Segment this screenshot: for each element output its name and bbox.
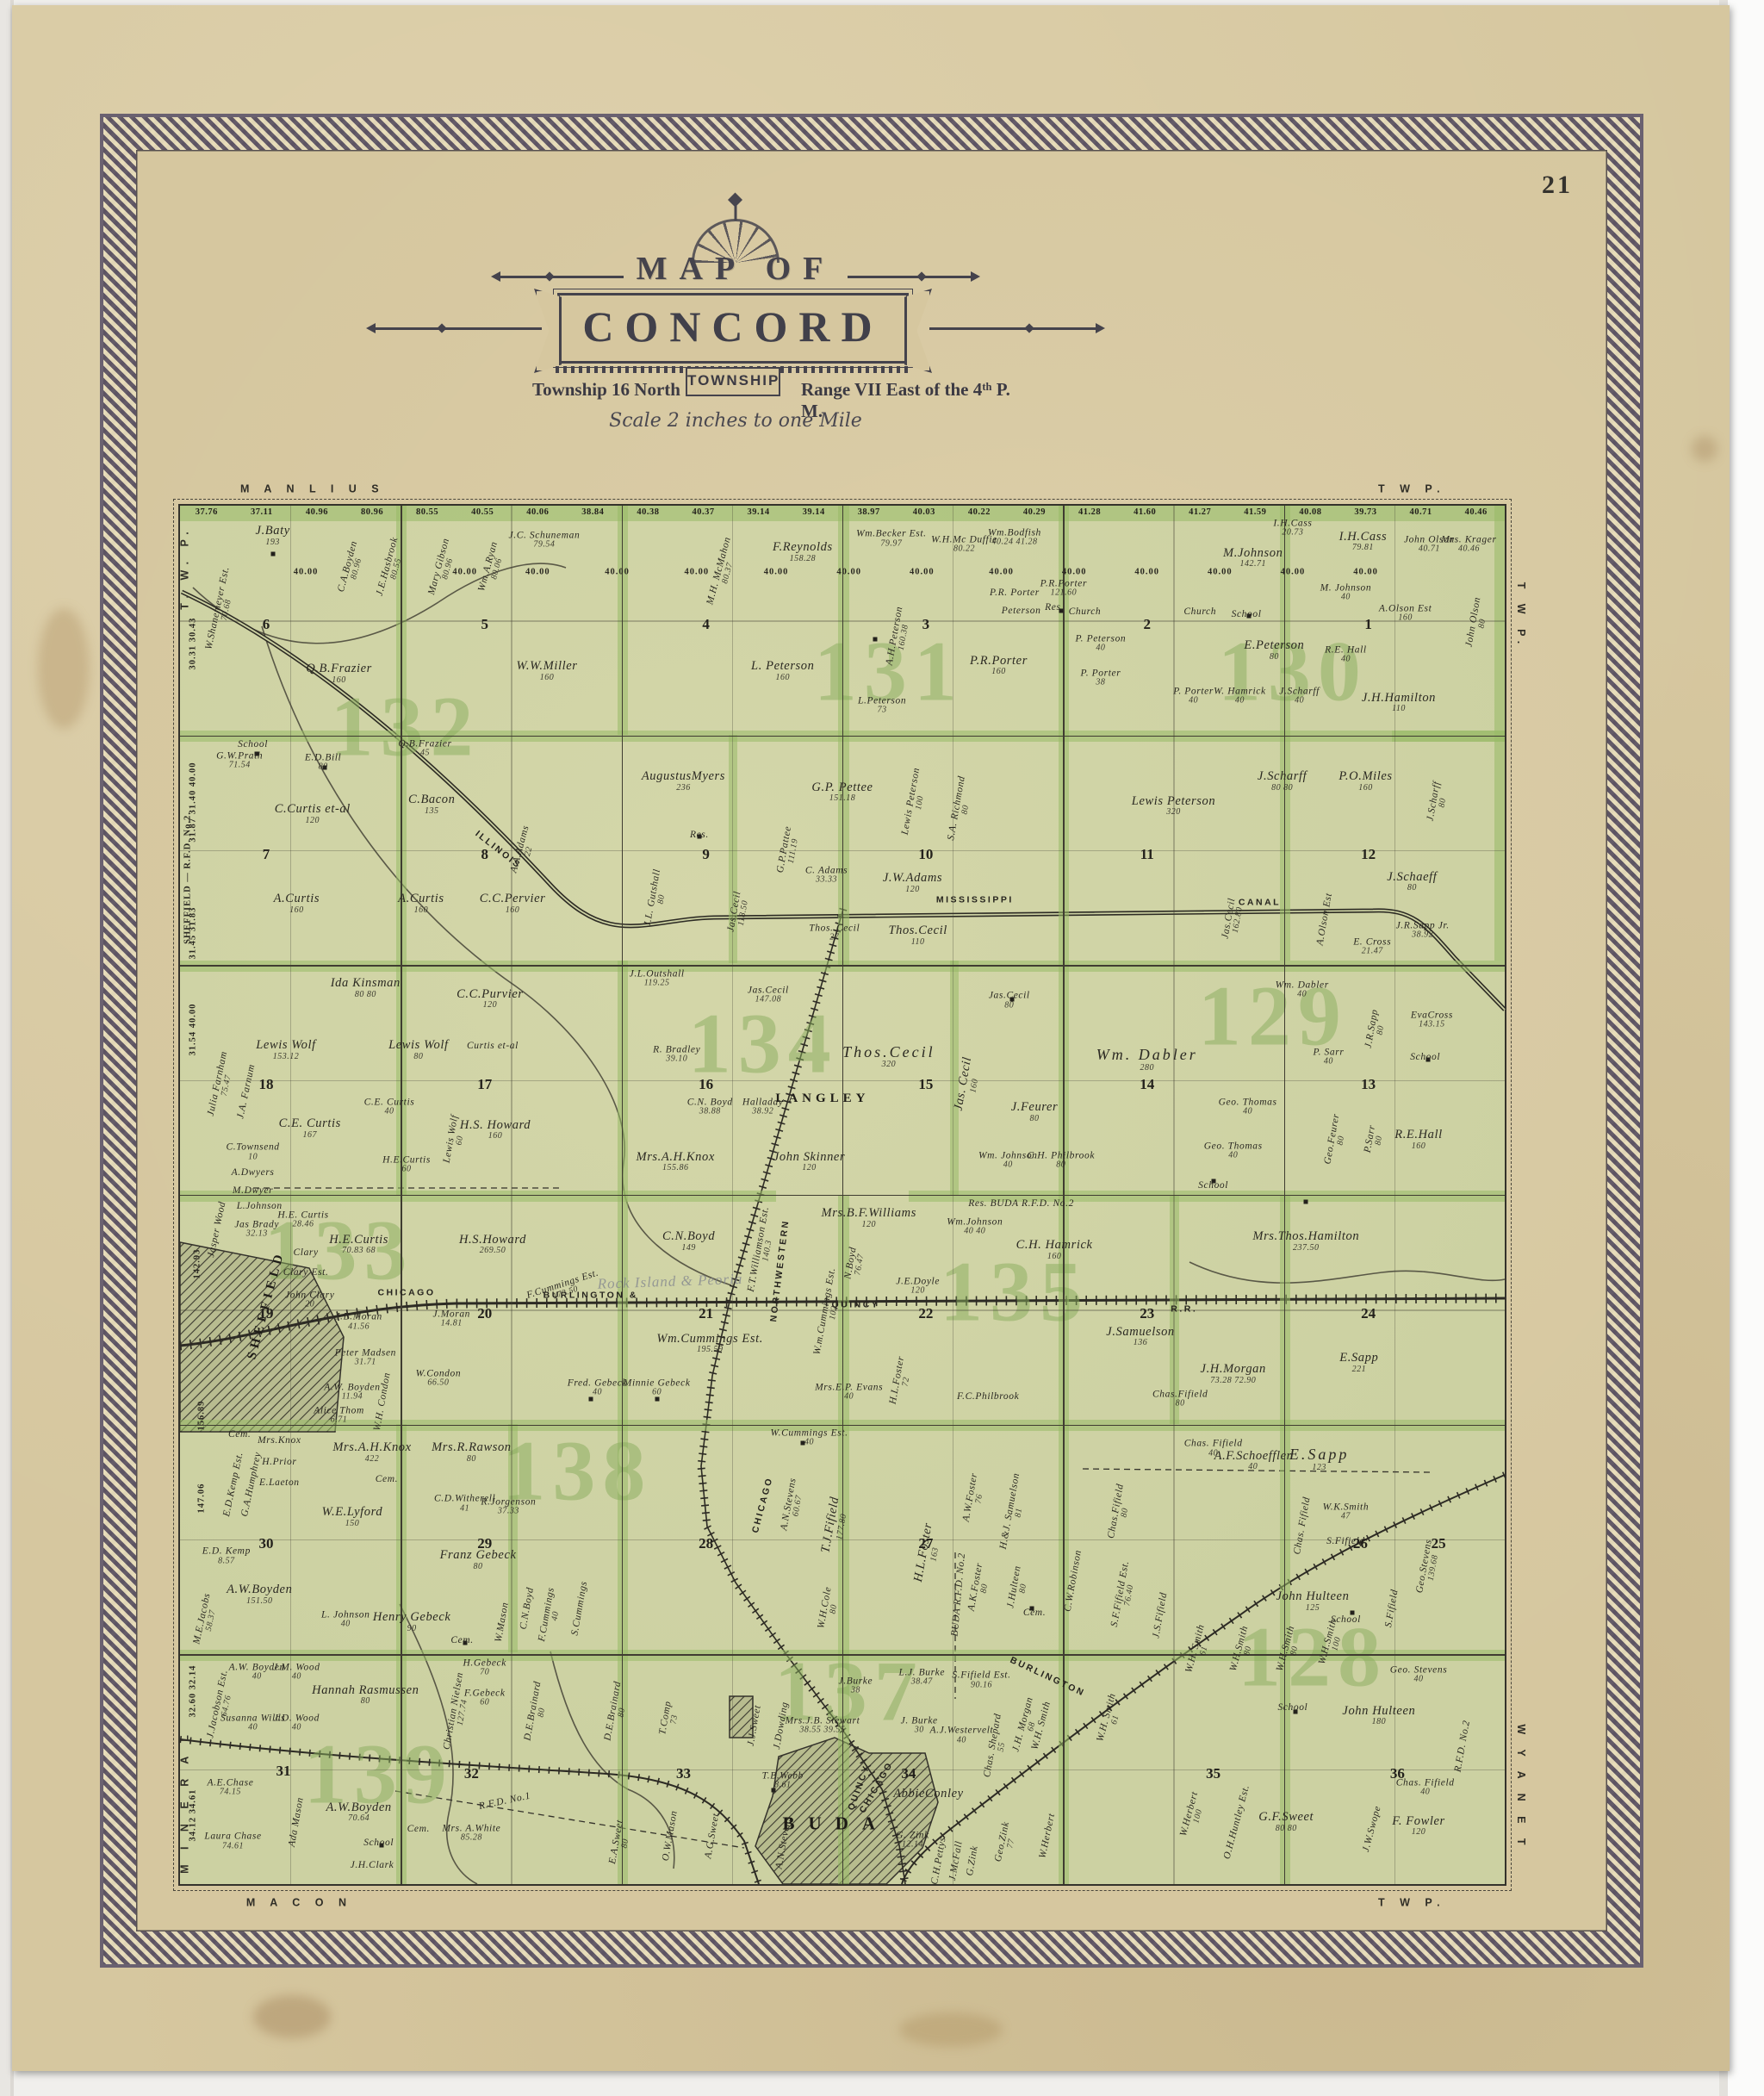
label-text: J.L.Outshall — [630, 968, 685, 979]
acreage-value: 80 80 — [331, 990, 401, 999]
parcel-owner-label: E.Peterson80 — [1244, 639, 1304, 662]
label-text: 40.00 — [605, 567, 630, 576]
parcel-owner-label: C.A.Boyden80.96 — [336, 540, 369, 596]
label-text: F.Reynolds — [773, 540, 833, 554]
label-text: O.W.Mason — [661, 1810, 680, 1862]
survey-number: 32.60 32.14 — [189, 1665, 198, 1718]
acreage-value: 20.73 — [1273, 528, 1312, 538]
survey-number: 40.06 — [526, 507, 549, 517]
label-text: Jas Brady — [234, 1219, 279, 1229]
parcel-owner-label: R.E.Hall160 — [1394, 1129, 1443, 1151]
parcel-owner-label: D.E.Brainard80 — [523, 1681, 553, 1744]
parcel-owner-label: P. Porter38 — [1081, 668, 1121, 687]
parcel-owner-label: W.Condon66.50 — [416, 1368, 462, 1388]
acreage-value: 120 — [457, 1001, 524, 1011]
acreage-value: 40 — [1390, 1676, 1448, 1685]
parcel-owner-label: P. Peterson40 — [1076, 633, 1127, 653]
parcel-owner-label: E.Laeton — [259, 1477, 300, 1488]
label-text: R.Jorgenson — [481, 1496, 536, 1507]
parcel-owner-label: E. Cross21.47 — [1353, 936, 1391, 956]
label-text: T. W. P. — [178, 526, 190, 609]
label-text: 40.00 — [764, 567, 789, 576]
acreage-value: 40 — [1219, 1107, 1277, 1116]
acreage-value: 60 — [624, 1389, 691, 1398]
acreage-value: 37.33 — [481, 1507, 536, 1516]
label-text: H.Gebeck — [463, 1658, 506, 1668]
parcel-owner-label: A.W.Foster76 — [960, 1472, 989, 1524]
railroad-label: MISSISSIPPI — [936, 895, 1014, 905]
parcel-owner-label: W.W.Miller160 — [517, 660, 578, 682]
parcel-owner-label: Fred. Gebeck40 — [568, 1378, 627, 1397]
parcel-owner-label: P.O.Miles160 — [1339, 770, 1392, 793]
label-text: C.H.Pettys — [929, 1836, 948, 1885]
railroad-label: BURLINGTON — [1009, 1656, 1087, 1699]
label-text: J.D. Wood — [274, 1713, 320, 1723]
section-number: 5 — [481, 616, 488, 633]
section-number: 35 — [1206, 1765, 1221, 1782]
parcel-owner-label: E.Sapp221 — [1339, 1352, 1378, 1374]
survey-number: 40.00 — [294, 567, 319, 576]
label-text: Thos.Cecil — [888, 924, 947, 937]
acreage-value: 60 — [464, 1699, 506, 1708]
acreage-value: 40 — [930, 1736, 994, 1745]
label-text: J.A. Farnum — [235, 1063, 257, 1120]
house-marker — [873, 638, 878, 642]
parcel-owner-label: A.H.Peterson160.38 — [885, 606, 915, 668]
parcel-owner-label: A.W.Boyden151.50 — [227, 1583, 292, 1606]
parcel-owner-label: Wm.Cummings Est.195.59 — [656, 1333, 763, 1355]
acreage-value: 40 — [1214, 697, 1266, 706]
parcel-owner-label: Laura Chase74.61 — [204, 1832, 261, 1851]
label-text: Minnie Gebeck — [624, 1378, 691, 1388]
parcel-owner-label: C. Adams33.33 — [805, 865, 848, 885]
parcel-owner-label: T.Comp73 — [657, 1701, 683, 1738]
parcel-owner-label: Minnie Gebeck60 — [624, 1378, 691, 1397]
label-text: M.Dwyer — [233, 1185, 273, 1196]
survey-number: 41.60 — [1134, 507, 1156, 517]
house-marker — [270, 552, 275, 557]
survey-number: 40.00 — [836, 567, 861, 576]
parcel-owner-label: J.Samuelson136 — [1106, 1326, 1175, 1348]
parcel-owner-label: Jas Brady32.13 — [234, 1219, 279, 1239]
label-text: S.Fifield — [1383, 1589, 1401, 1628]
acreage-value: 167 — [279, 1131, 341, 1141]
acreage-value: 38.92 — [742, 1107, 784, 1116]
acreage-value: 40 — [771, 1438, 848, 1447]
parcel-owner-label: A.E.Chase74.15 — [207, 1777, 253, 1797]
survey-number: 39.14 — [803, 507, 825, 517]
parcel-owner-label: Geo.Feurer80 — [1322, 1113, 1351, 1167]
label-text: W.Herbert — [1038, 1813, 1058, 1860]
parcel-owner-label: R.F.D. No.1 — [478, 1791, 531, 1813]
section-number: 7 — [263, 846, 270, 863]
acreage-value: 20 — [285, 1300, 334, 1309]
parcel-owner-label: A.Olson Est160 — [1379, 603, 1432, 623]
railroad-label: CHICAGO — [751, 1476, 775, 1534]
label-text: J.C. Schuneman — [509, 530, 581, 540]
parcel-owner-label: Mrs.A.H.Knox422 — [332, 1441, 411, 1464]
survey-number: 38.84 — [581, 507, 604, 517]
parcel-owner-label: M.Dwyer — [233, 1185, 273, 1196]
label-text: J.M. Wood — [273, 1662, 320, 1672]
label-text: J.H.Hamilton — [1362, 691, 1436, 705]
parcel-owner-label: J.H.Hamilton110 — [1362, 692, 1436, 714]
survey-number: 40.00 — [525, 567, 550, 576]
label-text: Henry Gebeck — [373, 1610, 451, 1624]
acreage-value: 27 — [809, 934, 860, 943]
section-number: 36 — [1390, 1765, 1405, 1782]
label-text: Cem. — [228, 1429, 251, 1440]
acreage-value: 160 — [751, 673, 814, 682]
survey-number: 40.00 — [605, 567, 630, 576]
parcel-owner-label: Julia Farnham75.47 — [206, 1050, 239, 1119]
label-text: P.R.Porter — [1040, 578, 1087, 588]
section-number: 6 — [263, 616, 270, 633]
parcel-owner-label: W. Hamrick40 — [1214, 686, 1266, 706]
survey-number: 38.97 — [858, 507, 880, 517]
acreage-value: 110 — [888, 938, 947, 948]
survey-number: 80.55 — [416, 507, 438, 517]
label-text: Chas. Fifield — [1292, 1496, 1313, 1556]
label-text: School — [1198, 1180, 1228, 1191]
parcel-owner-label: Church — [1183, 606, 1216, 617]
parcel-owner-label: Jas.Cecil162.80 — [1220, 897, 1246, 941]
parcel-owner-label: J.C. Schuneman79.54 — [509, 530, 581, 550]
acreage-value: 120 — [1392, 1828, 1445, 1838]
acreage-value: 28.46 — [277, 1221, 328, 1230]
parcel-owner-label: Thos.Cecil320 — [842, 1044, 935, 1070]
section-number: 22 — [918, 1305, 933, 1322]
label-text: Mrs.J.B. Stewart — [785, 1715, 860, 1726]
acreage-value: 41.56 — [335, 1322, 382, 1332]
section-number: 18 — [258, 1076, 273, 1093]
label-text: 40.00 — [1353, 567, 1378, 576]
parcel-owner-label: J.W.Swope — [1361, 1805, 1383, 1853]
label-text: C.N.Boyd — [519, 1587, 536, 1631]
parcel-owner-label: John Hulteen180 — [1342, 1705, 1415, 1727]
edge-label: T W P. — [1378, 1898, 1446, 1910]
parcel-owner-label: John Hulteen125 — [1276, 1590, 1350, 1613]
label-text: T W P. — [1378, 1897, 1446, 1909]
label-text: P. Sarr — [1313, 1047, 1344, 1057]
acreage-value: 135 — [408, 807, 456, 817]
parcel-owner-label: L. Peterson160 — [751, 660, 814, 682]
label-text: A.G.Sweet — [704, 1813, 722, 1860]
parcel-owner-label: Geo. Stevens40 — [1390, 1664, 1448, 1684]
parcel-owner-label: Q.B.Frazier160 — [306, 662, 372, 685]
parcel-owner-label: Church — [1069, 606, 1102, 617]
label-text: A.J.Westervelt — [930, 1726, 994, 1736]
acreage-value: 110 — [1362, 705, 1436, 714]
edge-label: T. W. P. — [179, 526, 191, 609]
survey-number: 40.55 — [471, 507, 494, 517]
label-text: J.Schaeff — [1387, 870, 1437, 884]
label-text: AugustusMyers — [642, 769, 725, 783]
label-text: School — [1410, 1052, 1440, 1062]
section-number: 20 — [477, 1305, 492, 1322]
acreage-value: 85.28 — [442, 1834, 500, 1844]
parcel-owner-label: John Olson80 — [1464, 596, 1493, 650]
survey-number: 31.54 40.00 — [189, 1004, 198, 1056]
parcel-owner-label: A.G.Sweet — [704, 1813, 722, 1860]
label-text: L.Johnson — [237, 1201, 283, 1211]
label-text: O.H.Huntley Est. — [1222, 1784, 1252, 1861]
survey-number: 37.76 — [196, 507, 218, 517]
parcel-owner-label: C.H. Hamrick160 — [1016, 1239, 1093, 1261]
acreage-value: 73 — [858, 706, 906, 716]
house-marker — [1304, 1200, 1308, 1204]
label-text: M. Johnson — [1320, 582, 1372, 593]
label-text: H.Prior — [262, 1457, 296, 1467]
parcel-owner-label: A.W.Boyden70.64 — [326, 1801, 391, 1824]
label-text: BUDA — [783, 1813, 890, 1833]
parcel-owner-label: P. Porter40 — [1173, 686, 1214, 706]
label-text: P.O.Miles — [1339, 769, 1392, 783]
label-text: R.E. Hall — [1325, 644, 1367, 655]
parcel-owner-label: P. Sarr40 — [1313, 1047, 1344, 1067]
parcel-owner-label: J.L.Outshall119.25 — [630, 968, 685, 988]
label-text: J.McFall — [947, 1840, 965, 1881]
acreage-value: 80 — [432, 1455, 512, 1465]
parcel-owner-label: J.Burke38 — [839, 1676, 873, 1695]
parcel-owner-label: Thos. Cecil27 — [809, 923, 860, 942]
parcel-owner-label: J.J.Sweet — [746, 1704, 764, 1747]
parcel-owner-label: Mrs.E.P. Evans40 — [815, 1382, 883, 1402]
section-number: 29 — [477, 1535, 492, 1552]
parcel-owner-label: Peterson — [1002, 605, 1041, 615]
acreage-value: 280 — [1096, 1064, 1198, 1073]
section-number: 21 — [699, 1305, 713, 1322]
parcel-owner-label: F.Gebeck60 — [464, 1688, 506, 1707]
label-text: 40.00 — [989, 567, 1014, 576]
acreage-value: 320 — [1132, 808, 1215, 818]
label-text: S.Fifield Est. — [952, 1670, 1010, 1681]
section-number: 31 — [276, 1763, 290, 1780]
survey-number: 40.00 — [1062, 567, 1087, 576]
foxing-stain — [1692, 436, 1717, 462]
label-text: Fred. Gebeck — [568, 1378, 627, 1388]
label-text: Clary — [294, 1247, 319, 1258]
parcel-owner-label: C.Townsend10 — [227, 1142, 280, 1162]
parcel-owner-label: Wm.Becker Est.79.97 — [856, 529, 927, 549]
label-text: R.R. — [1171, 1303, 1197, 1314]
parcel-owner-label: W.Shanemeyer Est.70.68 — [204, 566, 241, 653]
parcel-owner-label: W.Herbert — [1038, 1813, 1058, 1860]
label-text: C.C.Purvier — [457, 987, 524, 1001]
acreage-value: 31.71 — [335, 1359, 396, 1368]
label-text: W.Cummings Est. — [771, 1427, 848, 1438]
acreage-value: 80 — [1244, 652, 1304, 662]
parcel-owner-label: A.Dwyers — [232, 1167, 275, 1178]
label-text: 156.89 — [196, 1401, 206, 1431]
label-text: J.W.Adams — [883, 871, 942, 885]
parcel-owner-label: T.B.Webb8.61 — [762, 1770, 804, 1790]
acreage-value: 40 — [815, 1393, 883, 1403]
parcel-owner-label: J.S.Fifield — [1151, 1591, 1170, 1639]
section-number: 24 — [1361, 1305, 1376, 1322]
parcel-owner-label: Cem. — [376, 1473, 398, 1483]
label-text: I.H.Cass — [1339, 529, 1388, 543]
survey-number: 30.31 30.43 — [189, 618, 198, 670]
label-text: Wm.Cummings Est. — [656, 1332, 763, 1346]
acreage-value: 40 — [1325, 656, 1367, 665]
parcel-owner-label: H.E.Curtis70.83 68 — [329, 1233, 388, 1255]
acreage-value: 119.25 — [630, 980, 685, 989]
label-text: Thos.Cecil — [842, 1043, 935, 1060]
parcel-owner-label: J.Moran14.81 — [433, 1309, 470, 1328]
section-number: 3 — [922, 616, 930, 633]
parcel-owner-label: J.Scharff80 — [1425, 781, 1452, 824]
label-text: J.Burke — [839, 1676, 873, 1686]
acreage-value: 160 — [1339, 783, 1392, 793]
parcel-owner-label: H.E. Curtis28.46 — [277, 1210, 328, 1229]
survey-number: 80.96 — [361, 507, 383, 517]
label-text: F.C.Philbrook — [957, 1390, 1019, 1401]
label-text: Wm. Dabler — [1096, 1046, 1198, 1063]
acreage-value: 40 — [1076, 644, 1127, 654]
label-text: J.Scharff — [1279, 686, 1320, 696]
parcel-owner-label: G.F.Sweet80 80 — [1258, 1811, 1314, 1833]
section-number: 28 — [699, 1535, 713, 1552]
edge-label: M A N L I U S — [240, 483, 385, 495]
plat-map: 13213113013413312913513813713912837.7637… — [178, 504, 1506, 1886]
label-text: A.Curtis — [398, 892, 444, 905]
survey-number: 40.00 — [764, 567, 789, 576]
label-text: 147.06 — [196, 1483, 206, 1514]
parcel-owner-label: J.A. Farnum — [235, 1063, 258, 1120]
parcel-owner-label: R.F.D. No.2 — [1452, 1720, 1472, 1773]
section-number: 2 — [1143, 616, 1151, 633]
section-grid-line — [1284, 506, 1285, 1884]
acreage-value: 21.47 — [1353, 948, 1391, 957]
section-number: 13 — [1361, 1076, 1376, 1093]
label-text: MISSISSIPPI — [936, 894, 1014, 905]
acreage-value: 80 — [440, 1562, 517, 1571]
parcel-owner-label: Lewis Peterson100 — [899, 767, 931, 837]
acreage-value: 80 — [1387, 884, 1437, 893]
edge-label: T W P. — [1515, 582, 1527, 650]
title-map-of: MAP OF — [460, 250, 1011, 288]
label-text: C.H. Hamrick — [1016, 1238, 1093, 1252]
label-text: H.S. Howard — [460, 1118, 531, 1132]
label-text: Alice Thom — [314, 1405, 364, 1415]
label-text: Curtis et-al — [467, 1041, 519, 1051]
parcel-owner-label: Christian Nielsen127.74 — [442, 1671, 475, 1752]
label-text: I.H.Cass — [1273, 518, 1312, 528]
parcel-owner-label: G.W.Prath71.54 — [216, 750, 263, 770]
parcel-owner-label: J.Feurer80 — [1011, 1101, 1059, 1123]
label-text: School — [238, 739, 268, 749]
parcel-owner-label: Mrs.B.F.Williams120 — [822, 1207, 916, 1229]
label-text: P. Porter — [1081, 668, 1121, 678]
label-text: H.E.Curtis — [329, 1232, 388, 1246]
label-text: Mrs.R.Rawson — [432, 1440, 512, 1454]
acreage-value: 160 — [306, 676, 372, 686]
label-text: School — [1232, 609, 1262, 619]
acreage-value: 160 — [517, 673, 578, 682]
survey-number: 147.06 — [196, 1483, 206, 1514]
label-text: J.W.Swope — [1361, 1805, 1383, 1853]
acreage-value: 160 — [480, 906, 546, 916]
label-text: G.W.Prath — [216, 750, 263, 761]
acreage-value: 80 80 — [1258, 1824, 1314, 1833]
section-number: 9 — [702, 846, 710, 863]
label-text: Mrs.A.H.Knox — [332, 1440, 411, 1454]
label-text: T W P. — [1378, 482, 1446, 494]
label-text: J.Moran — [433, 1309, 470, 1319]
parcel-owner-label: School — [1198, 1180, 1228, 1191]
section-number: 30 — [258, 1535, 273, 1552]
parcel-owner-label: A.J.Westervelt40 — [930, 1726, 994, 1745]
parcel-owner-label: G.P. Pettee151.18 — [811, 781, 873, 804]
parcel-owner-label: School — [1277, 1702, 1307, 1713]
acreage-value: 60 — [382, 1166, 431, 1175]
parcel-owner-label: R.Jorgenson37.33 — [481, 1496, 536, 1516]
label-text: J.Scharff — [1258, 769, 1307, 783]
label-text: E.Laeton — [259, 1477, 300, 1488]
parcel-owner-label: F.Reynolds158.28 — [773, 541, 833, 563]
section-number: 23 — [1140, 1305, 1154, 1322]
acreage-value: 142.71 — [1223, 560, 1283, 569]
parcel-owner-label: G. Zink12.14 — [896, 1830, 929, 1850]
parcel-owner-label: C.C.Purvier120 — [457, 988, 524, 1011]
acreage-value: 221 — [1339, 1365, 1378, 1375]
parcel-owner-label: A.Olson Est — [1314, 893, 1334, 947]
label-text: P.R.Porter — [970, 653, 1028, 667]
parcel-owner-label: S.Cummings — [570, 1580, 590, 1636]
label-text: Cem. — [407, 1824, 430, 1834]
parcel-owner-label: C.Curtis et-al120 — [275, 803, 351, 825]
parcel-owner-label: L. Johnson40 — [321, 1609, 370, 1629]
parcel-owner-label: M.H. McMahon80.37 — [705, 536, 742, 608]
survey-number: 40.00 — [685, 567, 710, 576]
atlas-page-paper: 21 MAP OF CONCORD TOWNSHIP Township 16 N… — [12, 5, 1730, 2071]
acreage-value: 40 — [1214, 1463, 1292, 1472]
parcel-owner-label: Mrs.R.Rawson80 — [432, 1441, 512, 1464]
banner-ribbon-end — [534, 289, 562, 373]
parcel-owner-label: J.H.Morgan73.28 72.90 — [1201, 1363, 1266, 1385]
acreage-value: 155.86 — [637, 1164, 715, 1173]
label-text: L.J. Burke — [898, 1667, 945, 1677]
label-text: 40.00 — [836, 567, 861, 576]
acreage-value: 269.50 — [459, 1247, 526, 1256]
label-text: E.D. Kemp — [202, 1546, 251, 1557]
survey-number: 40.96 — [306, 507, 328, 517]
label-text: C.Curtis et-al — [275, 802, 351, 816]
parcel-owner-label: Res. — [1045, 602, 1064, 613]
label-text: A.F.Schoeffler — [1214, 1449, 1292, 1463]
page-number: 21 — [1542, 171, 1573, 200]
parcel-owner-label: Lewis Wolf153.12 — [256, 1039, 316, 1061]
label-text: Cem. — [1023, 1608, 1046, 1618]
section-grid-line — [1063, 506, 1064, 1884]
label-text: Wm. Dabler — [1276, 980, 1329, 990]
label-text: Lewis Peterson — [1132, 794, 1215, 808]
railroad-label: CHICAGO — [377, 1288, 435, 1297]
survey-number: 40.00 — [1281, 567, 1306, 576]
label-text: M A N L I U S — [240, 482, 385, 494]
label-text: A.Dwyers — [232, 1167, 275, 1178]
label-text: CHICAGO — [377, 1287, 435, 1297]
label-text: Mrs. Krager — [1441, 534, 1496, 544]
label-text: Jasper Wood — [206, 1200, 227, 1258]
parcel-owner-label: L.Peterson73 — [858, 695, 906, 715]
label-text: Lewis Wolf — [256, 1038, 316, 1052]
section-number: 27 — [918, 1535, 933, 1552]
survey-number: 34.12 34.61 — [189, 1789, 198, 1842]
acreage-value: 151.18 — [811, 794, 873, 804]
acreage-value: 149 — [662, 1244, 715, 1253]
